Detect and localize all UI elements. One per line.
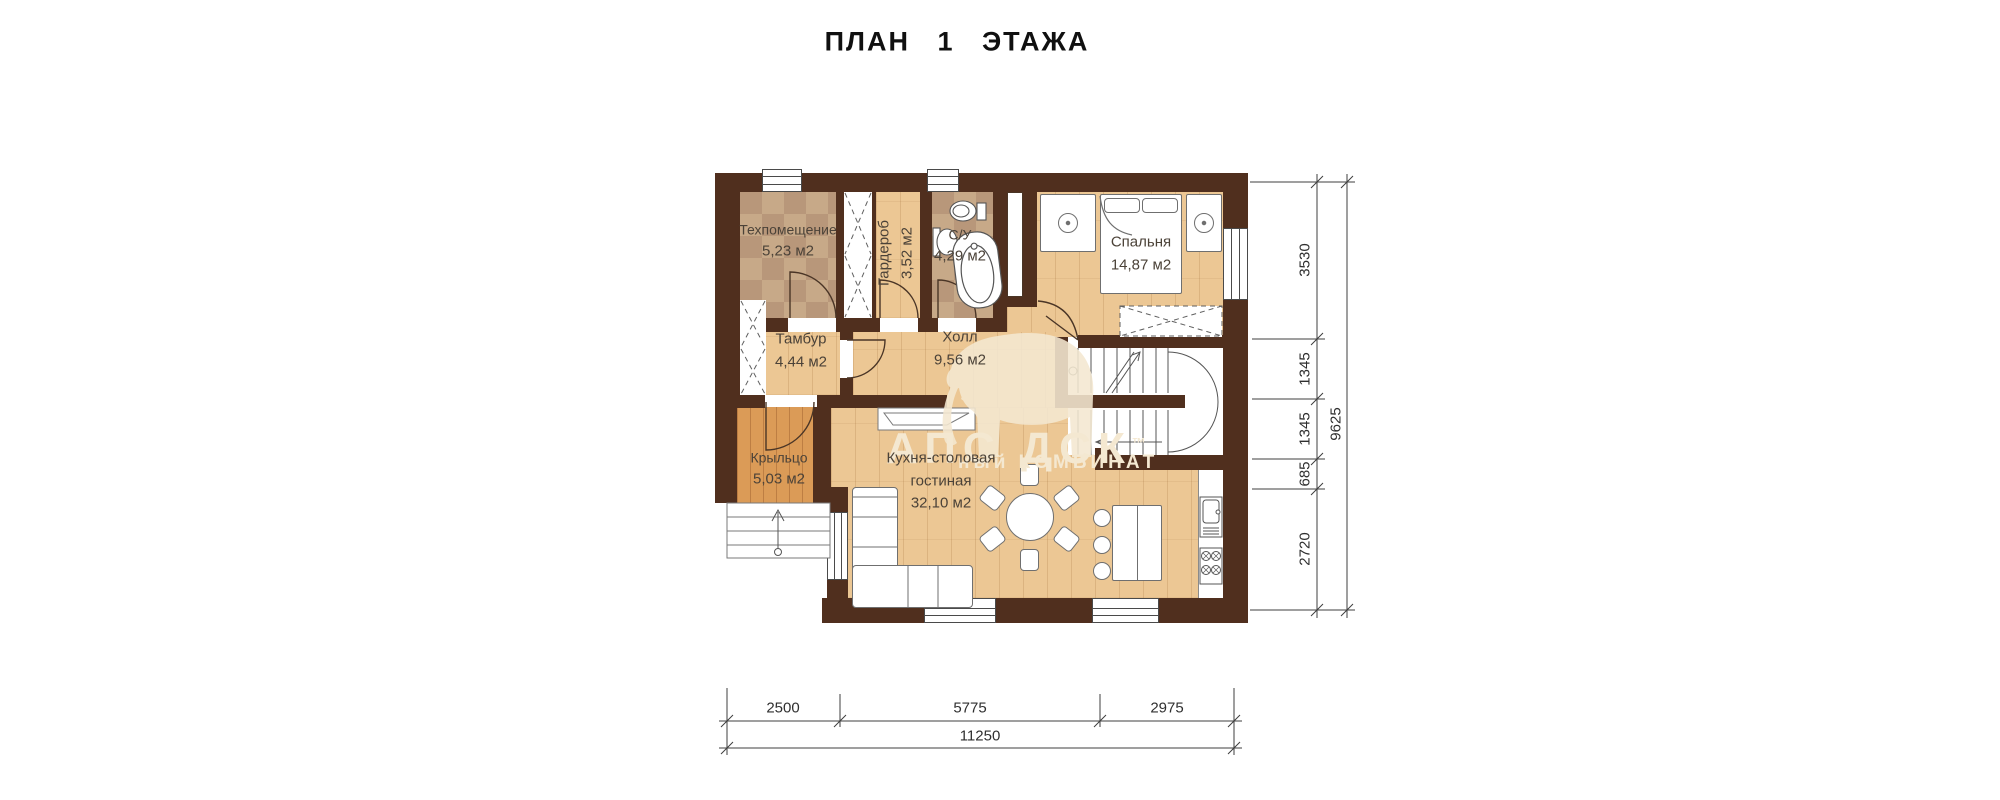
dim-right-1: 1345	[1297, 352, 1314, 385]
dim-right-total: 9625	[1328, 407, 1345, 440]
room-label-kitchen: Кухня-столоваягостиная32,10 м2	[887, 447, 996, 515]
watermark-mammoth-icon	[0, 0, 2000, 800]
page-title: ПЛАН 1 ЭТАЖА	[825, 27, 1090, 58]
dim-right-2: 1345	[1297, 412, 1314, 445]
room-label-vestibule: Тамбур4,44 м2	[775, 329, 827, 374]
room-label-bathroom: С/У4,29 м2	[934, 224, 986, 268]
dim-right-0: 3530	[1297, 243, 1314, 276]
dim-bottom-1: 5775	[953, 700, 986, 717]
dim-bottom-total: 11250	[960, 728, 1001, 745]
floor-plan-page: ПЛАН 1 ЭТАЖА	[0, 0, 2000, 800]
room-label-hall: Холл9,56 м2	[934, 327, 986, 372]
room-label-bedroom: Спальня14,87 м2	[1111, 232, 1171, 277]
room-label-wardrobe: Гардероб3,52 м2	[874, 220, 919, 286]
dim-bottom-2: 2975	[1150, 700, 1183, 717]
dim-right-3: 685	[1297, 461, 1314, 486]
room-label-porch: Крыльцо5,03 м2	[750, 447, 807, 491]
dim-right-4: 2720	[1297, 532, 1314, 565]
dim-bottom-0: 2500	[766, 700, 799, 717]
room-label-techroom: Техпомещение5,23 м2	[739, 219, 837, 263]
